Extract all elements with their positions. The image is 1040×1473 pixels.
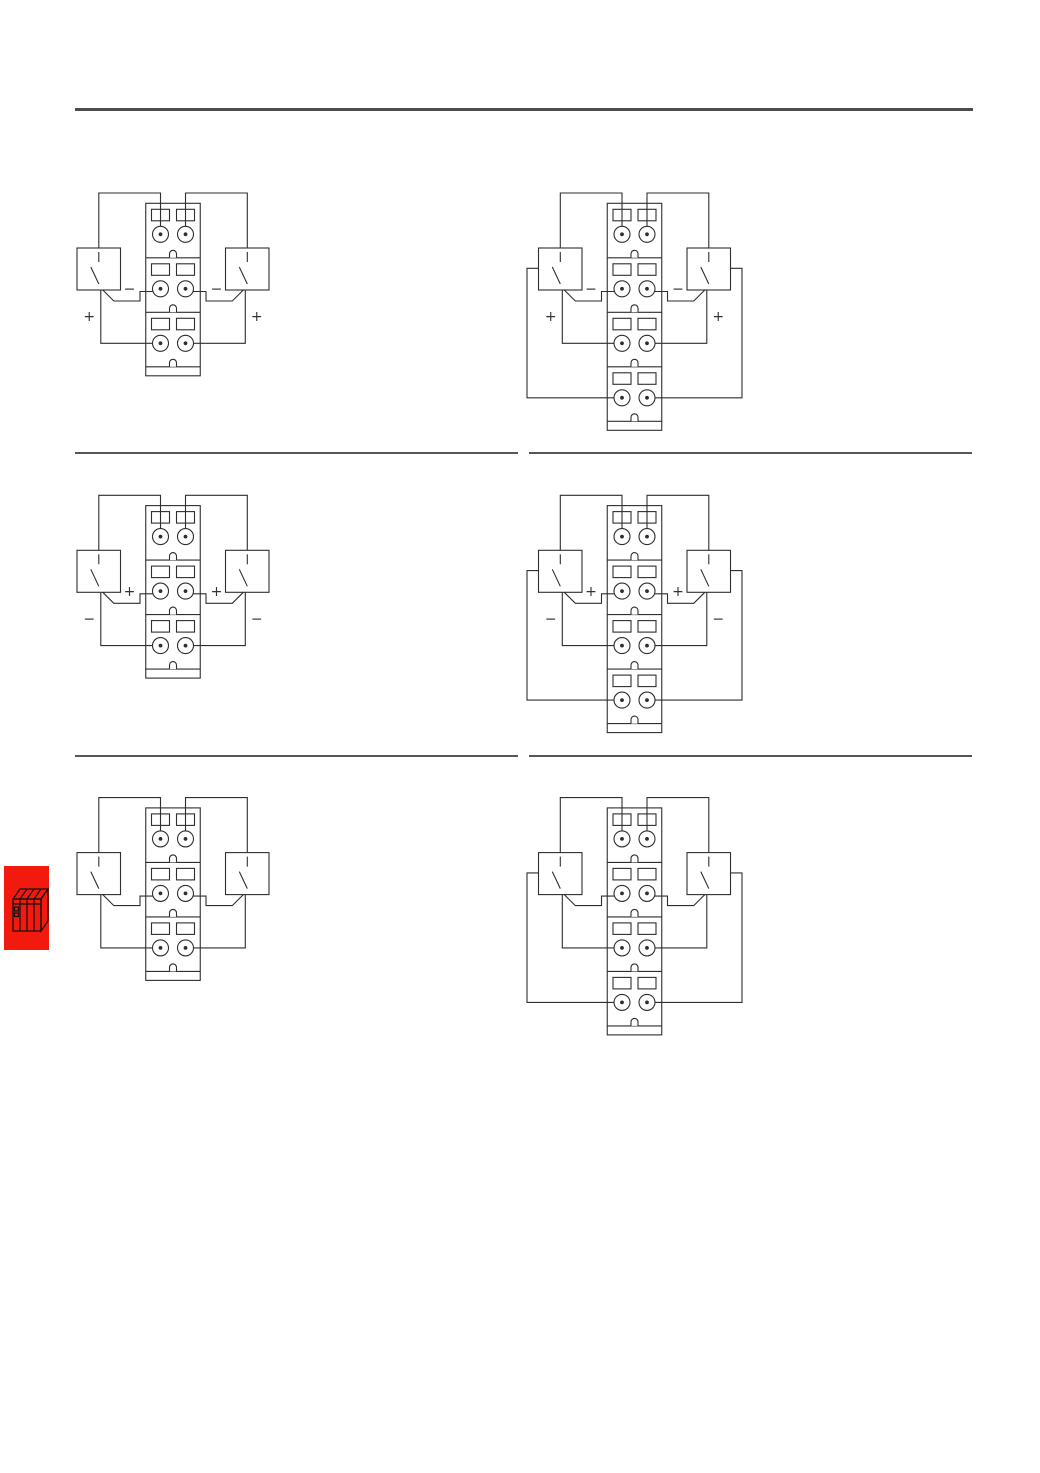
terminal-label-box xyxy=(613,566,631,578)
release-notch xyxy=(170,553,177,561)
signal-wire-tier2 xyxy=(103,895,153,906)
terminal-module xyxy=(146,506,201,678)
terminal-screw-dot xyxy=(620,946,624,950)
terminal-screw-dot xyxy=(620,396,624,400)
release-notch xyxy=(631,305,638,312)
supply-wire-tier3 xyxy=(562,895,614,948)
terminal-screw-dot xyxy=(184,287,188,291)
terminal-screw-dot xyxy=(184,232,188,236)
terminal-screw-dot xyxy=(645,396,649,400)
terminal-screw-dot xyxy=(620,341,624,345)
terminal-screw-dot xyxy=(159,287,163,291)
row-separator xyxy=(529,755,972,757)
terminal-screw-dot xyxy=(184,837,188,841)
supply-wire-tier3 xyxy=(562,592,614,645)
terminal-screw-dot xyxy=(184,644,188,648)
terminal-screw-dot xyxy=(645,589,649,593)
release-notch xyxy=(170,909,177,917)
terminal-screw-dot xyxy=(620,644,624,648)
terminal-label-box xyxy=(638,923,656,935)
terminal-label-box xyxy=(613,675,631,687)
terminal-module xyxy=(607,808,662,1035)
outer-polarity-label: − xyxy=(251,611,263,627)
switch-contact-blade xyxy=(91,872,99,889)
terminal-screw-dot xyxy=(159,644,163,648)
supply-wire-tier4 xyxy=(655,873,742,1003)
row-separator xyxy=(75,452,518,454)
terminal-label-box xyxy=(152,566,170,578)
terminal-screw-dot xyxy=(159,837,163,841)
terminal-screw-dot xyxy=(159,232,163,236)
release-notch xyxy=(170,305,177,312)
release-notch xyxy=(631,909,638,917)
terminal-module-body xyxy=(607,808,662,1035)
release-notch xyxy=(631,607,638,615)
release-notch xyxy=(631,250,638,257)
terminal-screw-dot xyxy=(645,644,649,648)
inner-polarity-label: − xyxy=(211,282,223,298)
terminal-label-box xyxy=(152,868,170,880)
terminal-label-box xyxy=(638,868,656,880)
outer-polarity-label: − xyxy=(83,611,95,627)
release-notch xyxy=(631,855,638,863)
supply-wire-tier4 xyxy=(527,268,614,398)
terminal-screw-dot xyxy=(620,287,624,291)
terminal-label-box xyxy=(613,373,631,385)
supply-wire-tier4 xyxy=(527,873,614,1003)
supply-wire-tier3 xyxy=(101,895,153,948)
terminal-screw-dot xyxy=(645,892,649,896)
switch-contact-blade xyxy=(239,872,247,889)
terminal-label-box xyxy=(638,318,656,330)
terminal-label-box xyxy=(638,675,656,687)
terminal-module xyxy=(607,203,662,430)
terminal-screw-dot xyxy=(620,837,624,841)
terminal-label-box xyxy=(152,318,170,330)
terminal-screw-dot xyxy=(620,589,624,593)
supply-wire-tier3 xyxy=(194,290,246,343)
release-notch xyxy=(170,250,177,257)
terminal-screw-dot xyxy=(620,698,624,702)
release-notch xyxy=(631,414,638,421)
inner-polarity-label: + xyxy=(672,584,684,600)
outer-polarity-label: + xyxy=(83,309,95,325)
release-notch xyxy=(631,1018,638,1026)
switch-contact-blade xyxy=(552,872,560,889)
terminal-module-body xyxy=(607,203,662,430)
terminal-label-box xyxy=(177,566,195,578)
inner-polarity-label: + xyxy=(124,584,136,600)
supply-wire-tier3 xyxy=(655,895,707,948)
left-sensor-circuit: −+ xyxy=(77,193,161,343)
release-notch xyxy=(170,359,177,367)
terminal-screw-dot xyxy=(645,946,649,950)
wiring-diagrams-canvas: −+−+−+−++−+−+−+− xyxy=(0,0,1040,1473)
terminal-label-box xyxy=(638,566,656,578)
terminal-screw-dot xyxy=(159,589,163,593)
inner-polarity-label: + xyxy=(585,584,597,600)
switch-contact-blade xyxy=(91,569,99,586)
switch-contact-blade xyxy=(701,267,709,284)
supply-wire-tier4 xyxy=(655,571,742,701)
terminal-screw-dot xyxy=(184,589,188,593)
outer-polarity-label: + xyxy=(545,309,557,325)
release-notch xyxy=(631,553,638,561)
terminal-label-box xyxy=(638,977,656,989)
switch-contact-blade xyxy=(239,569,247,586)
terminal-label-box xyxy=(152,923,170,935)
terminal-label-box xyxy=(177,264,195,276)
left-sensor-circuit xyxy=(77,798,161,948)
inner-polarity-label: − xyxy=(672,282,684,298)
terminal-screw-dot xyxy=(159,341,163,345)
outer-polarity-label: + xyxy=(251,309,263,325)
terminal-label-box xyxy=(638,621,656,633)
inner-polarity-label: − xyxy=(124,282,136,298)
terminal-label-box xyxy=(638,264,656,276)
wiring-diagram-bottom-left xyxy=(77,798,269,981)
terminal-label-box xyxy=(177,621,195,633)
terminal-screw-dot xyxy=(620,535,624,539)
terminal-module-body xyxy=(607,506,662,733)
terminal-label-box xyxy=(152,264,170,276)
release-notch xyxy=(170,855,177,863)
wiring-diagram-top-left: −+−+ xyxy=(77,193,269,376)
release-notch xyxy=(631,716,638,723)
supply-wire-tier3 xyxy=(655,592,707,645)
terminal-screw-dot xyxy=(159,892,163,896)
switch-contact-blade xyxy=(701,872,709,889)
supply-wire-tier4 xyxy=(655,268,742,398)
wiring-diagram-middle-left: +−+− xyxy=(77,495,269,678)
supply-wire-tier3 xyxy=(101,592,153,645)
manual-page: −+−+−+−++−+−+−+− xyxy=(0,0,1040,1473)
supply-wire-tier3 xyxy=(562,290,614,343)
terminal-screw-dot xyxy=(184,946,188,950)
terminal-screw-dot xyxy=(620,892,624,896)
right-sensor-circuit: +− xyxy=(186,495,270,645)
terminal-label-box xyxy=(613,868,631,880)
terminal-screw-dot xyxy=(645,698,649,702)
outer-polarity-label: + xyxy=(712,309,724,325)
terminal-screw-dot xyxy=(645,287,649,291)
plc-module-icon xyxy=(4,866,49,950)
terminal-label-box xyxy=(613,264,631,276)
switch-contact-blade xyxy=(552,569,560,586)
terminal-screw-dot xyxy=(645,232,649,236)
release-notch xyxy=(170,964,177,971)
terminal-screw-dot xyxy=(645,837,649,841)
supply-wire-tier3 xyxy=(194,895,246,948)
terminal-screw-dot xyxy=(184,341,188,345)
release-notch xyxy=(170,607,177,615)
terminal-screw-dot xyxy=(184,535,188,539)
row-separator xyxy=(529,452,972,454)
release-notch xyxy=(631,662,638,669)
terminal-label-box xyxy=(613,318,631,330)
terminal-label-box xyxy=(638,373,656,385)
left-sensor-circuit: +− xyxy=(77,495,161,645)
terminal-screw-dot xyxy=(620,1001,624,1005)
supply-wire-tier4 xyxy=(527,571,614,701)
signal-wire-tier2 xyxy=(564,895,614,906)
inner-polarity-label: + xyxy=(211,584,223,600)
switch-contact-blade xyxy=(239,267,247,284)
wiring-diagram-middle-right: +−+− xyxy=(527,495,742,732)
terminal-label-box xyxy=(177,318,195,330)
terminal-module xyxy=(146,203,201,375)
supply-wire-tier3 xyxy=(655,290,707,343)
supply-wire-tier3 xyxy=(101,290,153,343)
release-notch xyxy=(170,662,177,669)
wiring-diagram-top-right: −+−+ xyxy=(527,193,742,430)
supply-wire-tier3 xyxy=(194,592,246,645)
terminal-label-box xyxy=(177,868,195,880)
terminal-label-box xyxy=(613,977,631,989)
release-notch xyxy=(631,359,638,367)
terminal-screw-dot xyxy=(184,892,188,896)
terminal-module xyxy=(607,506,662,733)
terminal-screw-dot xyxy=(645,535,649,539)
terminal-label-box xyxy=(613,621,631,633)
terminal-label-box xyxy=(177,923,195,935)
switch-contact-blade xyxy=(552,267,560,284)
release-notch xyxy=(631,964,638,971)
right-sensor-circuit: −+ xyxy=(186,193,270,343)
terminal-screw-dot xyxy=(645,1001,649,1005)
signal-wire-tier2 xyxy=(655,895,705,906)
signal-wire-tier2 xyxy=(194,895,244,906)
terminal-screw-dot xyxy=(620,232,624,236)
inner-polarity-label: − xyxy=(585,282,597,298)
row-separator xyxy=(75,755,518,757)
terminal-module xyxy=(146,808,201,981)
terminal-label-box xyxy=(152,621,170,633)
terminal-screw-dot xyxy=(159,946,163,950)
terminal-screw-dot xyxy=(159,535,163,539)
outer-polarity-label: − xyxy=(545,611,557,627)
right-sensor-circuit xyxy=(186,798,270,948)
switch-contact-blade xyxy=(701,569,709,586)
chapter-tab-marker xyxy=(4,866,49,950)
outer-polarity-label: − xyxy=(712,611,724,627)
wiring-diagram-bottom-right xyxy=(527,798,742,1035)
terminal-label-box xyxy=(613,923,631,935)
switch-contact-blade xyxy=(91,267,99,284)
terminal-screw-dot xyxy=(645,341,649,345)
